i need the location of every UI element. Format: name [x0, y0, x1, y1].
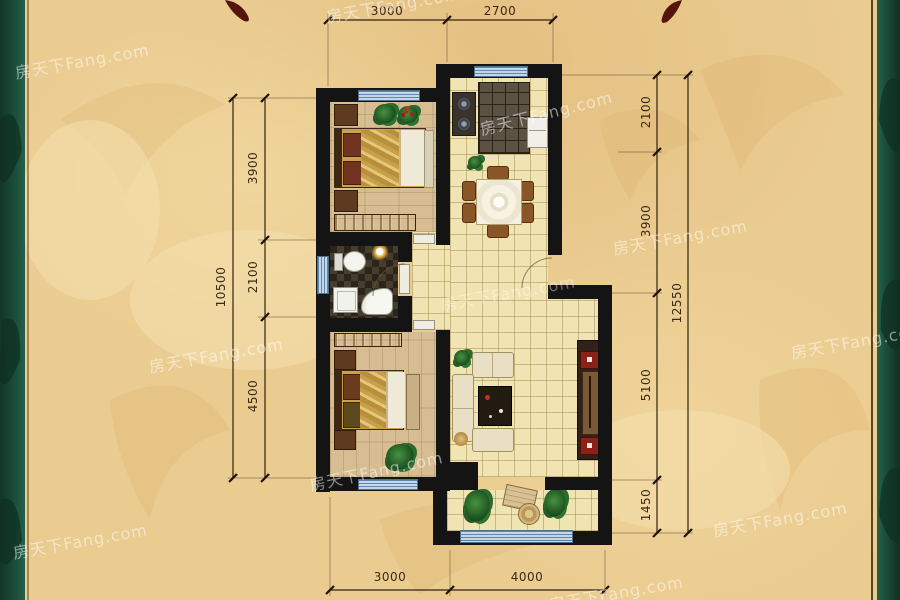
dining-chair — [462, 181, 476, 201]
watermark: 房天下Fang.com — [711, 494, 849, 541]
fridge-divider — [529, 130, 546, 131]
watermark: 房天下Fang.com — [13, 36, 151, 83]
bedroom1-flowers — [404, 110, 408, 114]
left-border-pattern — [0, 0, 25, 600]
bedroom2-nightstand-top — [334, 350, 356, 370]
bedroom1-wardrobe — [424, 130, 434, 188]
coffee-table-item — [485, 395, 490, 400]
coffee-table — [478, 386, 512, 426]
dim-left-1: 3900 — [246, 138, 260, 198]
tv-panel — [582, 371, 599, 435]
side-table — [454, 432, 468, 446]
bedroom2-dresser — [334, 333, 402, 347]
right-border-pattern — [877, 0, 900, 600]
dim-left-2: 2100 — [246, 247, 260, 307]
tv-cabinet-knob — [587, 357, 592, 362]
bedroom2-bed — [334, 370, 404, 430]
bed1-headboard — [335, 129, 342, 187]
dining-chair — [520, 203, 534, 223]
tv-cabinet-knob — [587, 443, 592, 448]
kitchen-stove — [452, 92, 476, 136]
watermark: 房天下Fang.com — [147, 330, 285, 377]
bed1-pillow — [343, 161, 362, 185]
bedroom2-nightstand-bottom — [334, 430, 356, 450]
bathroom-door — [399, 264, 410, 294]
coffee-table-item — [499, 409, 503, 413]
right-border-line — [871, 0, 873, 600]
watermark: 房天下Fang.com — [611, 212, 749, 259]
sofa-single — [472, 428, 514, 452]
balcony-round-seat — [518, 503, 540, 525]
floorplan-image: 3000 2700 3000 4000 3900 2100 4500 10500… — [0, 0, 900, 600]
bedroom1-window — [358, 90, 420, 101]
wall-outer-right — [598, 285, 612, 545]
bedroom1-door — [413, 234, 435, 244]
stove-burner-icon — [457, 117, 471, 131]
washer — [333, 287, 358, 313]
dim-left-total: 10500 — [214, 257, 228, 317]
left-border-line — [27, 0, 29, 600]
sofa-loveseat — [472, 352, 514, 378]
wall-living-balcony-left — [447, 462, 478, 490]
bedroom1-bed — [334, 128, 426, 188]
dim-top-2: 2700 — [470, 4, 530, 18]
bathroom-ceiling-lamp-icon — [376, 248, 383, 255]
tv-cabinet-accent — [580, 437, 600, 455]
dim-right-4: 1450 — [639, 475, 653, 535]
toilet-tank — [334, 253, 343, 271]
stove-burner-icon — [457, 97, 471, 111]
bed2-blanket — [360, 372, 386, 428]
balcony-window — [460, 530, 573, 543]
dining-chair — [487, 166, 509, 180]
dim-bottom-1: 3000 — [360, 570, 420, 584]
watermark: 房天下Fang.com — [547, 568, 685, 600]
dining-chair — [487, 224, 509, 238]
dining-chair — [520, 181, 534, 201]
left-green-border — [0, 0, 25, 600]
bed2-pillow — [343, 374, 361, 400]
dim-left-3: 4500 — [246, 366, 260, 426]
bedroom1-nightstand-bottom — [334, 190, 358, 212]
watermark: 房天下Fang.com — [11, 516, 149, 563]
bed2-pillow — [343, 402, 361, 428]
bed1-blanket — [361, 130, 399, 186]
wall-kitchen-right — [548, 64, 562, 255]
wall-bathroom-right-top — [398, 232, 412, 262]
bed2-sheet — [386, 372, 405, 428]
watermark: 房天下Fang.com — [324, 0, 462, 28]
toilet-icon — [343, 251, 366, 272]
bathroom-window — [317, 256, 329, 294]
wall-bathroom-right-bottom — [398, 296, 412, 332]
dining-table — [476, 179, 522, 225]
tv-panel-line — [589, 376, 591, 428]
dim-right-1: 2100 — [639, 82, 653, 142]
dining-chair — [462, 203, 476, 223]
wall-living-balcony-right — [545, 477, 598, 490]
bedroom2-door — [413, 320, 435, 330]
dim-right-3: 5100 — [639, 355, 653, 415]
coffee-table-item — [489, 415, 492, 418]
washer-lid — [337, 291, 356, 311]
right-green-border — [877, 0, 900, 600]
bedroom1-dresser — [334, 214, 416, 231]
bedroom1-nightstand-top — [334, 104, 358, 126]
dim-bottom-2: 4000 — [497, 570, 557, 584]
wall-bedroom1-kitchen — [436, 64, 450, 245]
bed1-pillow — [343, 133, 362, 157]
bed1-sheet — [399, 130, 427, 186]
bedroom2-desk — [406, 374, 420, 430]
bed2-headboard — [335, 371, 342, 429]
dim-right-total: 12550 — [670, 273, 684, 333]
kitchen-window — [474, 66, 528, 77]
tv-cabinet-accent — [580, 351, 600, 369]
